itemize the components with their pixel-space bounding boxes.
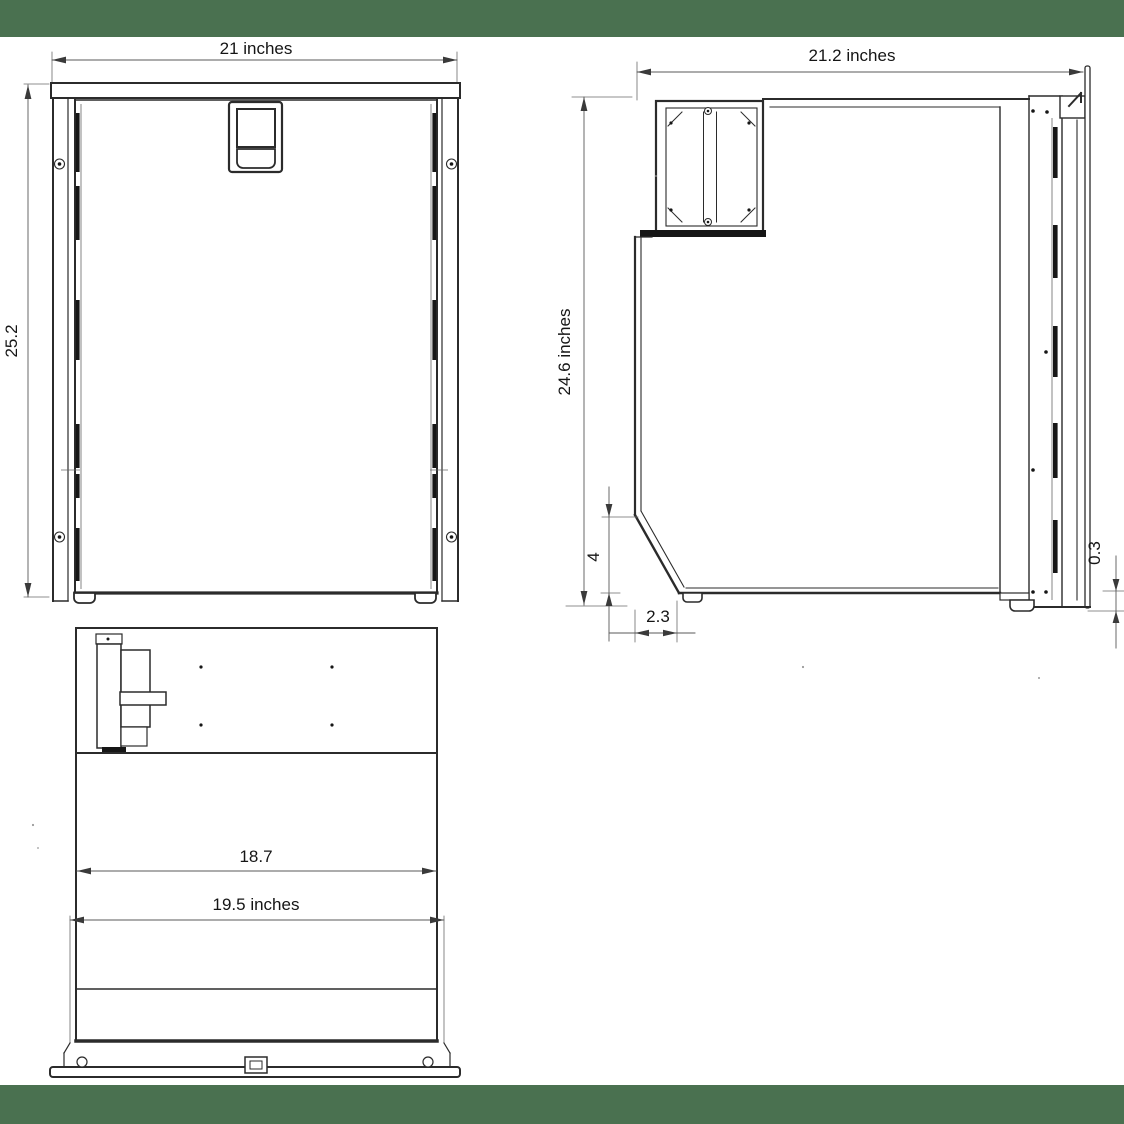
front-left-hinge-strips [76,113,80,581]
front-width-label: 21 inches [220,39,293,58]
bottom-flange-width-label: 19.5 inches [213,895,300,914]
side-chamfer-depth-dimension: 2.3 [609,601,695,642]
side-door-offset-dimension: 0.3 [1085,541,1124,648]
screw-icon [447,532,457,542]
screw-icon [55,159,65,169]
front-width-dimension: 21 inches [52,39,457,82]
side-height-dimension: 24.6 inches [555,97,632,606]
top-green-band [0,0,1124,37]
front-right-hinge-strips [432,113,436,581]
front-left-foot [74,593,95,603]
front-door-panel [75,100,437,593]
side-chamfer-depth-label: 2.3 [646,607,670,626]
front-view: 21 inches 25.2 [2,39,460,603]
mount-hole-icon [77,1057,87,1067]
bottom-view: 18.7 19.5 inches [50,628,460,1077]
side-height-label: 24.6 inches [555,309,574,396]
front-right-frame [442,98,458,601]
front-height-label: 25.2 [2,324,21,357]
compressor-shelf [640,230,766,237]
side-depth-dimension: 21.2 inches [637,46,1083,100]
bottom-inner-width-label: 18.7 [239,847,272,866]
bottom-latch [245,1057,267,1073]
side-chamfer-height-dimension: 4 [584,487,638,641]
side-depth-label: 21.2 inches [809,46,896,65]
front-mounting-screws [55,159,457,542]
front-height-dimension: 25.2 [2,84,49,597]
mount-hole-icon [423,1057,433,1067]
refrigerator-dimension-drawing: 21 inches 25.2 [0,0,1124,1124]
side-door-front-edge [1085,66,1090,608]
front-left-frame [53,98,68,601]
bottom-green-band [0,1085,1124,1124]
screw-icon [447,159,457,169]
front-right-foot [415,593,436,603]
front-door-handle [229,102,282,172]
side-view: 21.2 inches 24.6 inches [555,46,1124,648]
compressor-mount-box [640,101,766,237]
side-door-assembly [1000,66,1090,611]
side-chamfer-height-label: 4 [584,552,603,561]
side-back-foot [683,593,702,602]
side-door-offset-label: 0.3 [1085,541,1104,565]
side-front-foot [1010,600,1034,611]
technical-drawing-page: 21 inches 25.2 [0,0,1124,1124]
front-top-cap [51,83,460,98]
screw-icon [55,532,65,542]
